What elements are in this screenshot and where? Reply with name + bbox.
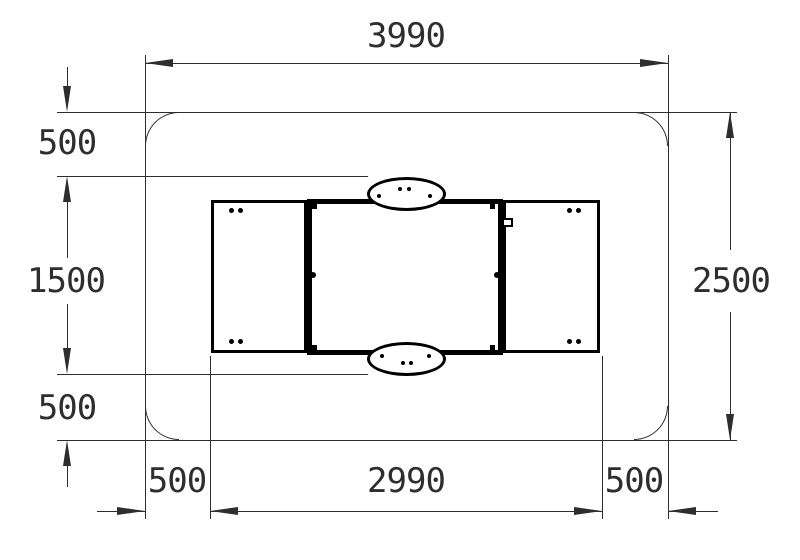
dim-label-bottom-right-offset: 500 <box>605 461 663 501</box>
bolt-hole <box>238 339 243 344</box>
platform-bottom-dome-cover <box>367 342 446 376</box>
bolt-hole <box>428 194 432 198</box>
bolt-hole <box>377 194 381 198</box>
bolt-hole <box>401 361 405 365</box>
bolt-hole <box>567 208 572 213</box>
latch-clip <box>502 218 513 227</box>
arrowhead-bottom-right-1 <box>117 507 145 515</box>
bolt-hole <box>567 339 572 344</box>
boundary-right-line <box>668 55 669 519</box>
pivot-dot-right <box>494 272 500 278</box>
boundary-left-line <box>145 55 146 519</box>
arrowhead-right-up <box>726 112 734 138</box>
dimension-line-left-c <box>67 304 68 348</box>
dim-label-overall-width: 3990 <box>367 16 445 56</box>
dimension-line-left-a <box>67 67 68 87</box>
arrowhead-left-down-2 <box>63 348 71 374</box>
dim-label-platform-length: 1500 <box>27 261 105 301</box>
bolt-hole <box>576 208 581 213</box>
corner-arc-bottom-left <box>145 406 179 440</box>
platform-left-panel <box>211 200 307 353</box>
frame-corner-mark <box>312 345 317 350</box>
bolt-hole <box>409 361 413 365</box>
dimension-line-left-d <box>67 466 68 487</box>
corner-arc-bottom-right <box>634 406 668 440</box>
arrowhead-left-up-2 <box>63 440 71 466</box>
bolt-hole <box>229 339 234 344</box>
extension-line-platform-left <box>210 356 211 519</box>
dim-label-left-bottom-offset: 500 <box>38 388 96 428</box>
dimension-line-bottom-c <box>668 511 718 512</box>
extension-line-platform-bottom <box>57 374 368 375</box>
extension-line-platform-right <box>602 356 603 519</box>
bolt-hole <box>407 187 411 191</box>
extension-line-platform-top <box>57 176 368 177</box>
technical-drawing: 3990 2500 500 1500 500 500 2990 500 <box>0 0 800 560</box>
corner-arc-top-right <box>634 112 668 146</box>
bolt-hole <box>229 208 234 213</box>
dim-label-overall-height: 2500 <box>692 261 770 301</box>
boundary-bottom-line <box>57 440 737 441</box>
bolt-hole <box>398 187 402 191</box>
frame-corner-mark <box>490 204 495 209</box>
arrowhead-bottom-right-2 <box>574 507 602 515</box>
arrowhead-top-left <box>145 59 173 67</box>
arrowhead-left-up-1 <box>63 176 71 202</box>
platform-center-frame <box>307 199 503 355</box>
corner-arc-top-left <box>145 112 179 146</box>
pivot-dot-left <box>310 272 316 278</box>
arrowhead-left-down-1 <box>63 86 71 112</box>
arrowhead-right-down <box>726 414 734 440</box>
dim-label-bottom-left-offset: 500 <box>148 461 206 501</box>
bolt-hole <box>576 339 581 344</box>
bolt-hole <box>380 354 384 358</box>
frame-corner-mark <box>312 204 317 209</box>
bolt-hole <box>238 208 243 213</box>
dimension-line-top <box>145 63 668 64</box>
dimension-line-left-b <box>67 202 68 258</box>
dim-label-left-top-offset: 500 <box>38 123 96 163</box>
dim-label-platform-width: 2990 <box>367 461 445 501</box>
arrowhead-top-right <box>640 59 668 67</box>
dimension-line-bottom-b <box>210 511 602 512</box>
bolt-hole <box>427 354 431 358</box>
platform-right-panel <box>503 200 600 353</box>
frame-corner-mark <box>490 345 495 350</box>
